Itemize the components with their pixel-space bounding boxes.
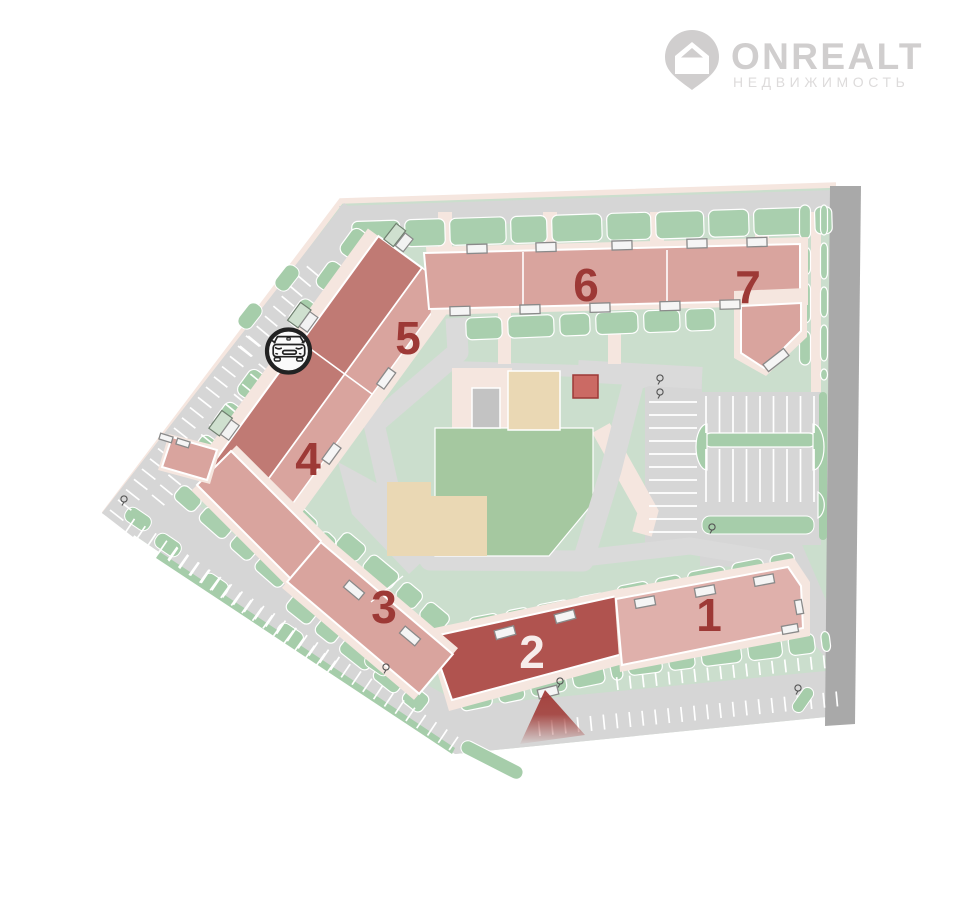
svg-text:7: 7 (735, 261, 761, 313)
svg-text:1: 1 (696, 589, 722, 641)
svg-text:6: 6 (573, 259, 599, 311)
svg-text:2: 2 (519, 626, 545, 678)
svg-text:4: 4 (295, 433, 321, 485)
svg-text:3: 3 (371, 581, 397, 633)
svg-text:5: 5 (395, 312, 421, 364)
svg-text:НЕДВИЖИМОСТЬ: НЕДВИЖИМОСТЬ (733, 74, 909, 90)
svg-text:ONREALT: ONREALT (731, 36, 924, 77)
